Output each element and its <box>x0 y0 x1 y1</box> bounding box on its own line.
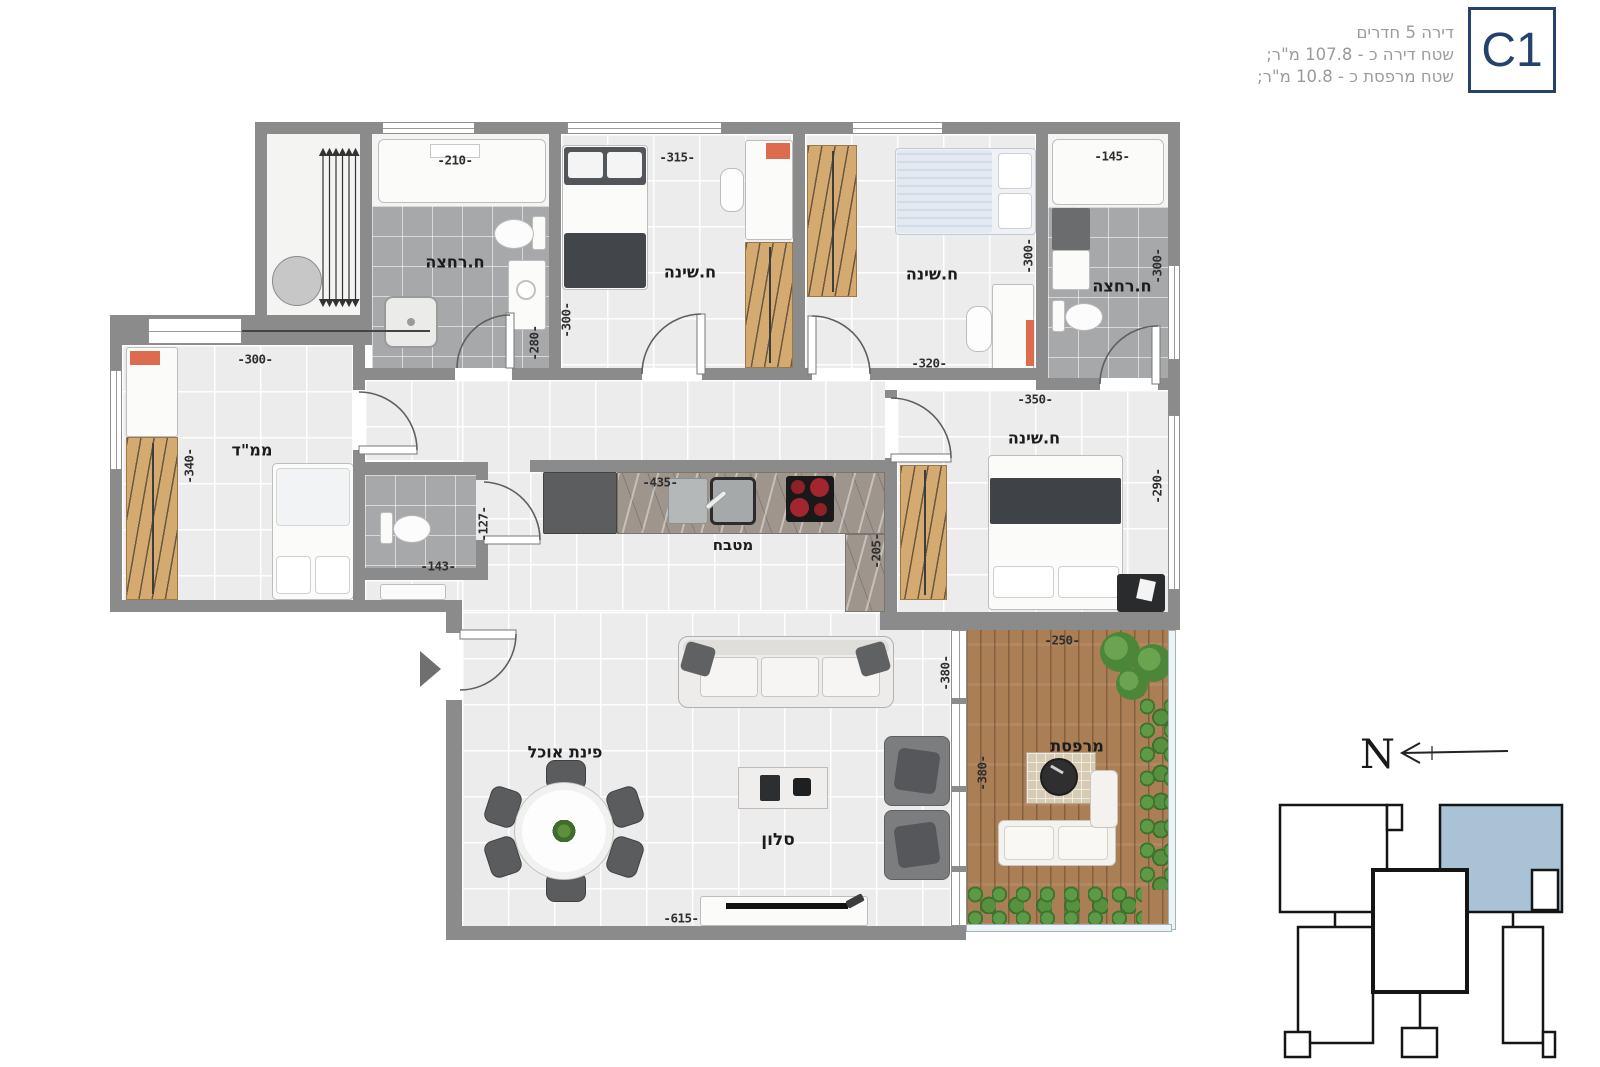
wall <box>353 450 365 612</box>
stove-burner <box>790 498 809 517</box>
dim-mamad-w: -300- <box>237 352 272 367</box>
header-line-3: שטח מרפסת כ - 10.8 מ"ר; <box>1134 66 1454 88</box>
master-wardrobe <box>900 465 947 600</box>
bed2-dresser-accent <box>766 143 790 159</box>
wall <box>880 612 1180 630</box>
outdoor-sofa-return <box>1090 770 1118 828</box>
hedge-bottom <box>968 886 1142 928</box>
room-label-dining: פינת אוכל <box>528 743 603 762</box>
wall <box>353 345 365 390</box>
stove-burner <box>814 503 827 516</box>
wall <box>561 368 642 380</box>
wall <box>255 122 267 318</box>
saferoom-pillow <box>315 556 350 594</box>
key-plan-core <box>1373 870 1467 992</box>
bed3-wardrobe <box>807 145 857 297</box>
hall-cabinet <box>380 584 446 600</box>
saferoom-pillow <box>276 556 311 594</box>
room-label-bath1: ח.רחצה <box>425 253 484 272</box>
bed2-pillow <box>568 152 603 178</box>
master-pillow <box>993 566 1054 598</box>
outdoor-cushion <box>1004 826 1054 860</box>
hallway-floor <box>365 380 885 460</box>
room-label-bath2: ח.רחצה <box>1092 277 1151 296</box>
master-pillow <box>1058 566 1119 598</box>
window <box>852 122 943 134</box>
wall <box>549 134 561 380</box>
tv-screen <box>726 903 848 909</box>
mullion <box>951 786 967 792</box>
north-letter: N <box>1360 732 1395 778</box>
dim-bath1-w: -210- <box>437 153 472 168</box>
bath2-vanity <box>1052 250 1090 290</box>
dim-mamad-h: -340- <box>182 448 197 483</box>
wall <box>1036 378 1100 390</box>
dim-balcony-w: -250- <box>1044 633 1079 648</box>
coffee-table-decor <box>793 778 811 796</box>
sofa-cushion <box>761 657 819 697</box>
wall <box>702 368 805 380</box>
bed3-chair <box>966 306 992 352</box>
dim-wc-h: -127- <box>476 506 491 541</box>
wall <box>446 700 462 940</box>
wall <box>885 390 897 398</box>
wall <box>805 368 812 380</box>
unit-badge: C1 <box>1468 7 1556 93</box>
outdoor-cushion <box>1058 826 1108 860</box>
dim-bath2-h: -300- <box>1150 248 1165 283</box>
room-label-saferoom: ממ"ד <box>232 441 273 460</box>
wall <box>360 134 372 318</box>
wc-toilet-bowl <box>393 515 431 543</box>
entry-arrow <box>420 651 441 687</box>
plan-header: דירה 5 חדרים שטח דירה כ - 107.8 מ"ר; שטח… <box>1134 22 1454 88</box>
dim-master-w: -350- <box>1017 392 1052 407</box>
wall <box>722 122 852 134</box>
master-blanket <box>990 478 1121 524</box>
wall <box>1036 134 1048 390</box>
saferoom-desk-accent <box>130 351 160 365</box>
room-label-bed2: ח.שינה <box>664 263 716 282</box>
outdoor-table <box>1040 758 1078 796</box>
balcony-railing-bottom <box>966 924 1172 932</box>
floorplan-page: ח.רחצה ח.שינה ח.שינה ח.רחצה ממ"ד מטבח ח.… <box>0 0 1600 1067</box>
bed2-blanket <box>564 233 646 288</box>
bath2-vanity-dark <box>1052 208 1090 250</box>
window <box>110 370 122 470</box>
bed3-blanket <box>897 150 992 233</box>
dim-bed2-w: -315- <box>659 150 694 165</box>
bed3-desk-accent <box>1026 320 1034 366</box>
dim-bed3-h: -300- <box>1021 238 1036 273</box>
key-plan <box>1275 790 1575 1062</box>
coffee-table <box>738 767 828 809</box>
balcony-sliding-door <box>951 630 967 926</box>
dim-kitchen-w: -435- <box>642 475 677 490</box>
dim-bath2-w: -145- <box>1094 149 1129 164</box>
wall <box>870 368 1036 380</box>
wall <box>255 122 382 134</box>
dim-living-h: -380- <box>938 655 953 690</box>
window <box>1168 265 1180 360</box>
coffee-table-tray <box>760 775 780 801</box>
dim-kitchen-h: -205- <box>869 533 884 568</box>
room-label-master: ח.שינה <box>1008 429 1060 448</box>
armchair-pillow <box>893 821 940 868</box>
room-label-balcony: מרפסת <box>1050 737 1104 756</box>
bath2-toilet-bowl <box>1065 303 1103 331</box>
room-label-bed3: ח.שינה <box>906 265 958 284</box>
wall <box>943 122 1180 134</box>
armchair-pillow <box>893 747 940 794</box>
window <box>1168 415 1180 590</box>
header-line-1: דירה 5 חדרים <box>1134 22 1454 44</box>
header-line-2: שטח דירה כ - 107.8 מ"ר; <box>1134 44 1454 66</box>
table-centerpiece <box>552 820 576 842</box>
bath2-toilet-tank <box>1052 300 1065 332</box>
wall <box>1168 122 1180 265</box>
wall <box>110 600 462 612</box>
bed3-pillow <box>998 193 1032 229</box>
wall <box>446 612 462 633</box>
saferoom-duvet <box>276 468 350 526</box>
room-label-kitchen: מטבח <box>713 536 754 554</box>
stove-burner <box>791 480 805 494</box>
tree <box>1116 668 1148 700</box>
wall <box>110 345 122 370</box>
wall <box>365 462 476 475</box>
wall <box>885 458 897 612</box>
wall <box>1158 378 1180 390</box>
boiler-circle <box>272 256 322 306</box>
stove-burner <box>810 478 829 497</box>
wc-toilet-tank <box>380 512 393 544</box>
wall <box>446 926 966 940</box>
room-label-living: סלון <box>761 830 795 850</box>
bed2-wardrobe <box>745 242 793 368</box>
outside-patch <box>110 612 446 942</box>
shower-drain <box>407 318 415 326</box>
saferoom-window-shutter <box>148 318 242 344</box>
bed2-pillow <box>607 152 642 178</box>
wall <box>530 460 897 472</box>
window <box>567 122 722 134</box>
window <box>382 122 475 134</box>
mullion <box>951 866 967 872</box>
wall <box>512 368 561 380</box>
toilet-bowl <box>494 219 534 249</box>
wall <box>476 462 488 480</box>
dim-wc-w: -143- <box>420 559 455 574</box>
wall <box>793 134 805 380</box>
balcony-railing-right <box>1168 630 1176 930</box>
wall <box>365 368 455 380</box>
dim-balcony-h: -380- <box>975 755 990 790</box>
bed2-chair <box>720 168 744 212</box>
dim-bed2-h: -300- <box>559 302 574 337</box>
wall <box>110 470 122 612</box>
bed3-pillow <box>998 153 1032 189</box>
north-arrow: N <box>1340 722 1530 784</box>
wall <box>475 122 567 134</box>
saferoom-wardrobe <box>126 437 178 600</box>
mullion <box>951 698 967 704</box>
tv-console <box>700 896 868 926</box>
dim-bed3-w: -320- <box>911 356 946 371</box>
vanity-basin <box>516 280 536 300</box>
fridge <box>543 472 617 534</box>
dim-living-w: -615- <box>663 911 698 926</box>
toilet-tank <box>532 216 546 250</box>
dim-bath1-h: -280- <box>527 325 542 360</box>
dim-master-h: -290- <box>1150 468 1165 503</box>
